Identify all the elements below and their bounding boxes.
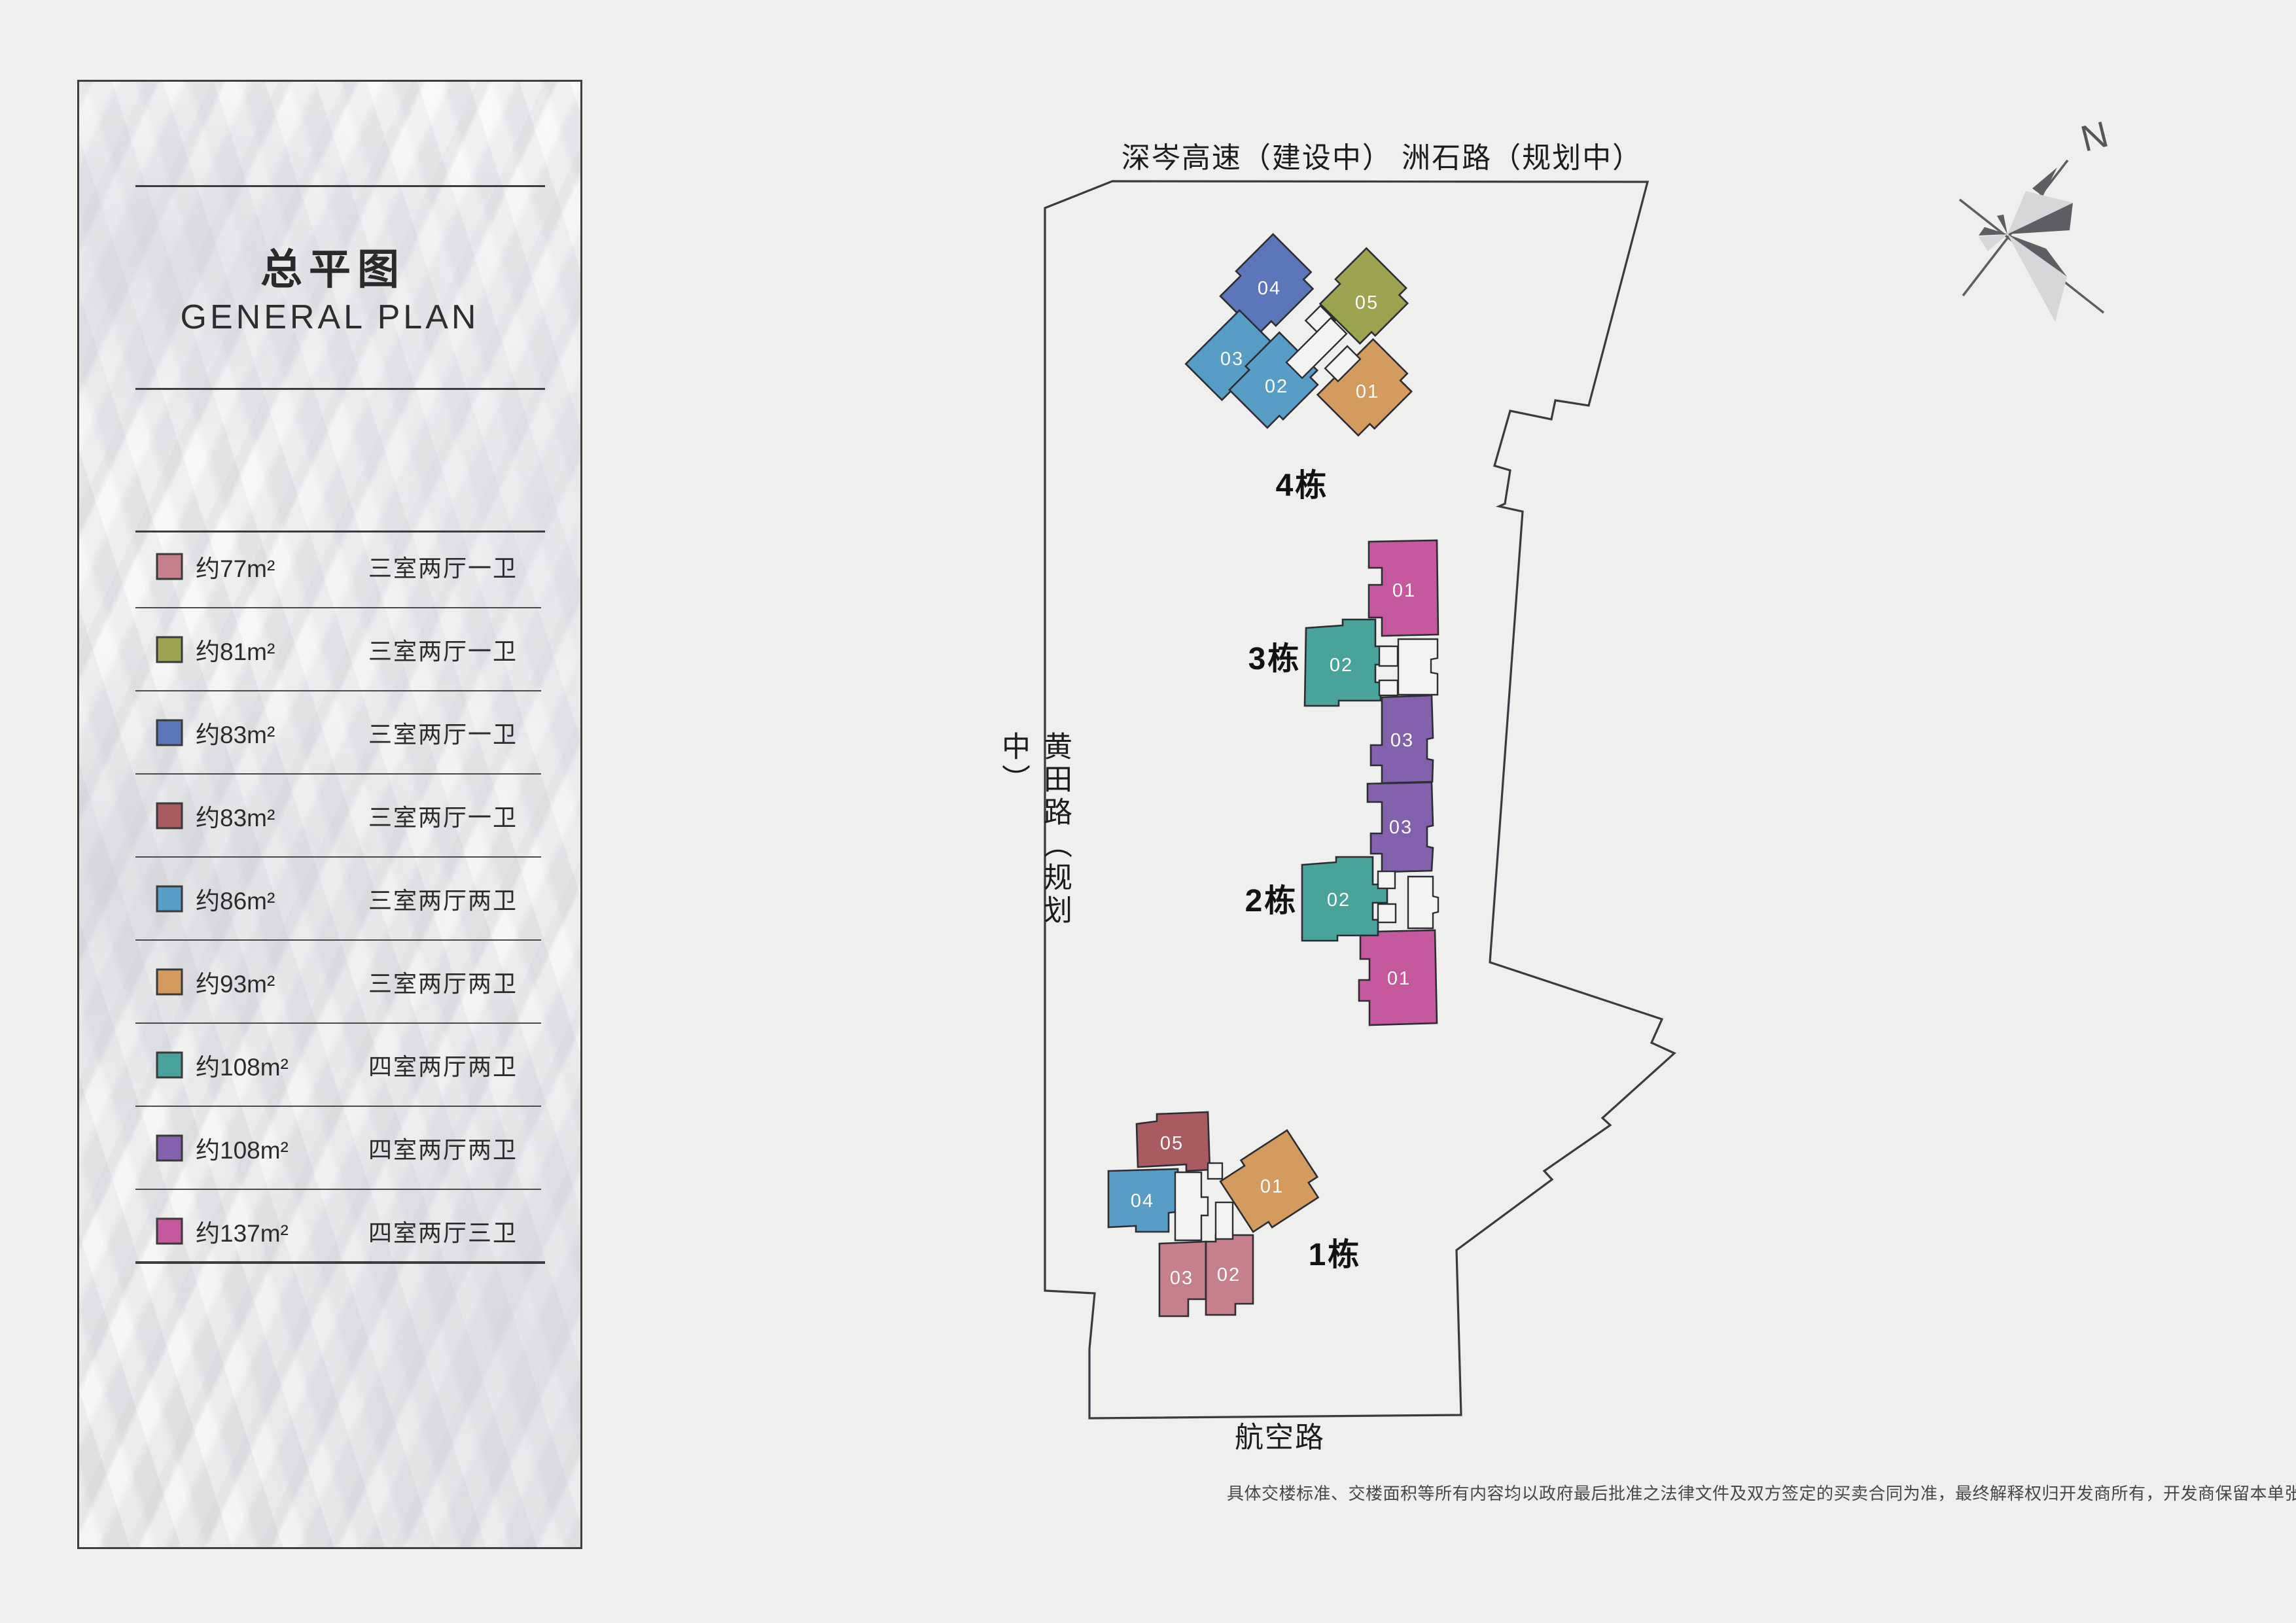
block-3-core — [1398, 639, 1438, 695]
legend-type: 四室两厅两卫 — [368, 1048, 518, 1082]
unit-label: 04 — [1258, 278, 1281, 299]
unit-label: 02 — [1265, 376, 1288, 397]
unit-label: 03 — [1390, 730, 1414, 751]
legend-swatch — [156, 968, 183, 996]
block-1-core — [1175, 1172, 1208, 1240]
legend-type: 三室两厅一卫 — [368, 799, 518, 833]
legend-item-81: 约81m² 三室两厅一卫 — [135, 607, 541, 690]
legend-area: 约81m² — [196, 632, 275, 667]
legend-area: 约108m² — [196, 1130, 289, 1166]
legend-area: 约93m² — [196, 964, 275, 1000]
legend-list: 约77m² 三室两厅一卫 约81m² 三室两厅一卫 约83m² 三室两厅一卫 约… — [79, 525, 580, 1272]
legend-area: 约137m² — [196, 1213, 289, 1249]
legend-type: 三室两厅一卫 — [368, 633, 518, 667]
legend-area: 约83m² — [196, 715, 275, 750]
unit-label: 05 — [1160, 1133, 1184, 1154]
legend-swatch — [156, 719, 183, 746]
block-1-core-2 — [1216, 1202, 1233, 1239]
block-3-core-2 — [1379, 646, 1398, 666]
legend-item-83a: 约83m² 三室两厅一卫 — [135, 690, 541, 773]
unit-label: 05 — [1355, 292, 1379, 313]
block-3: 01 02 03 3栋 — [1248, 540, 1438, 783]
road-label-bottom: 航空路 — [1235, 1422, 1325, 1454]
legend-swatch — [156, 802, 183, 829]
general-plan-page: { "sidebar": { "title_cn": "总平图", "title… — [0, 0, 2296, 1623]
legend-swatch — [156, 1217, 183, 1245]
legend-panel: 总平图 GENERAL PLAN 约77m² 三室两厅一卫 约81m² 三室两厅… — [77, 80, 582, 1549]
legend-type: 四室两厅两卫 — [368, 1131, 518, 1165]
block-2-core-2 — [1378, 871, 1395, 888]
north-compass-icon: N — [1960, 113, 2112, 322]
road-label-left: 黄田路（规划中） — [992, 731, 1076, 967]
unit-label: 04 — [1131, 1191, 1154, 1212]
legend-swatch — [156, 885, 183, 913]
legend-area: 约86m² — [196, 881, 275, 916]
legend-swatch — [156, 636, 183, 663]
legend-item-137: 约137m² 四室两厅三卫 — [135, 1189, 541, 1272]
block-1: 05 04 01 03 02 1栋 — [1108, 1112, 1361, 1316]
road-label-top: 深岑高速（建设中） 洲石路（规划中） — [1122, 142, 1642, 174]
unit-label: 01 — [1392, 580, 1416, 601]
legend-type: 三室两厅一卫 — [368, 550, 518, 584]
unit-label: 03 — [1220, 349, 1244, 370]
unit-label: 01 — [1387, 968, 1411, 989]
legend-item-108a: 约108m² 四室两厅两卫 — [135, 1022, 541, 1106]
block-2-label: 2栋 — [1245, 884, 1298, 918]
unit-label: 02 — [1330, 655, 1353, 676]
legend-item-83b: 约83m² 三室两厅一卫 — [135, 773, 541, 856]
block-3-core-3 — [1379, 680, 1398, 695]
block-2-core — [1408, 877, 1438, 928]
divider — [135, 1261, 545, 1264]
divider — [135, 388, 545, 390]
legend-area: 约108m² — [196, 1047, 289, 1083]
disclaimer-text: 具体交楼标准、交楼面积等所有内容均以政府最后批准之法律文件及双方签定的买卖合同为… — [1227, 1484, 2296, 1503]
block-2: 03 02 01 2栋 — [1245, 782, 1438, 1025]
block-2-core-3 — [1378, 904, 1396, 922]
legend-area: 约83m² — [196, 798, 275, 833]
legend-type: 三室两厅一卫 — [368, 716, 518, 750]
block-3-label: 3栋 — [1248, 642, 1301, 676]
unit-label: 01 — [1260, 1176, 1284, 1197]
unit-label: 02 — [1217, 1265, 1241, 1285]
unit-label: 03 — [1389, 817, 1413, 838]
unit-label: 02 — [1327, 890, 1351, 911]
block-1-label: 1栋 — [1309, 1238, 1362, 1272]
block-4: 04 05 03 02 01 4栋 — [1186, 234, 1418, 503]
legend-swatch — [156, 553, 183, 580]
legend-item-77: 约77m² 三室两厅一卫 — [79, 525, 580, 607]
block-1-core-3 — [1208, 1163, 1222, 1179]
legend-swatch — [156, 1051, 183, 1079]
divider — [135, 185, 545, 187]
block-4-label: 4栋 — [1276, 468, 1329, 503]
legend-item-108b: 约108m² 四室两厅两卫 — [135, 1106, 541, 1189]
legend-item-86: 约86m² 三室两厅两卫 — [135, 856, 541, 939]
page-title-cn: 总平图 — [79, 236, 580, 296]
legend-type: 三室两厅两卫 — [368, 965, 518, 999]
legend-area: 约77m² — [196, 549, 275, 584]
legend-type: 四室两厅三卫 — [368, 1214, 518, 1248]
legend-swatch — [156, 1134, 183, 1162]
unit-label: 01 — [1356, 381, 1379, 402]
page-title-en: GENERAL PLAN — [79, 298, 580, 337]
legend-type: 三室两厅两卫 — [368, 882, 518, 916]
unit-label: 03 — [1170, 1268, 1193, 1289]
compass-n-label: N — [2077, 113, 2112, 160]
legend-item-93: 约93m² 三室两厅两卫 — [135, 939, 541, 1022]
